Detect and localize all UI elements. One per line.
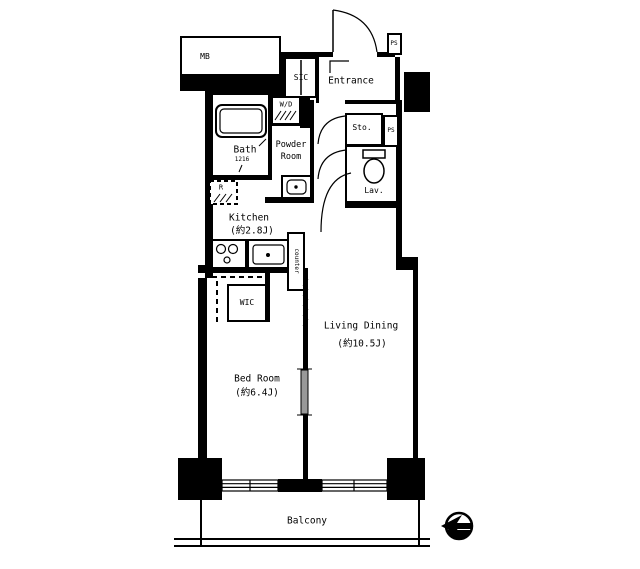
powder-room-label-2: Room: [281, 153, 301, 162]
counter-label: counter: [293, 248, 299, 273]
fridge-space-box: [210, 181, 237, 204]
entrance-step-line: [330, 61, 349, 73]
glass-partition: [297, 369, 312, 415]
living-window: [322, 480, 387, 491]
wd-label: W/D: [280, 102, 293, 109]
mb-box: [181, 37, 280, 75]
fridge-label: R: [219, 185, 223, 192]
wic-label: WIC: [240, 299, 254, 307]
entry-door: [333, 10, 377, 52]
bedroom-label: Bed Room: [234, 374, 280, 384]
bathtub-icon: [216, 105, 266, 137]
washbasin-icon: [282, 176, 311, 198]
ps-mid-label: PS: [387, 128, 394, 134]
sic-label: SIC: [294, 74, 308, 82]
floor-plan-drawing: [0, 0, 640, 569]
storage-door-arc: [318, 116, 345, 144]
north-arrow-icon: [441, 513, 473, 539]
floor-plan: MB SIC Entrance PS W/D Bath 1216 Powder …: [0, 0, 640, 569]
mb-label: MB: [200, 53, 210, 61]
ps-top-label: PS: [390, 41, 397, 47]
storage-label: Sto.: [352, 124, 371, 132]
living-size-label: (約10.5J): [337, 339, 387, 349]
bath-label: Bath: [234, 145, 257, 155]
bedroom-window: [222, 480, 278, 491]
living-dining-label: Living Dining: [324, 321, 398, 331]
lavatory-door-arc: [318, 150, 346, 179]
kitchen-size-label: (約2.8J): [230, 226, 274, 236]
balcony-label: Balcony: [287, 516, 327, 526]
stove-box: [212, 240, 246, 268]
entrance-label: Entrance: [328, 76, 374, 86]
powder-room-label-1: Powder: [276, 141, 307, 150]
lavatory-label: Lav.: [364, 187, 383, 195]
bedroom-size-label: (約6.4J): [235, 388, 279, 398]
kitchen-label: Kitchen: [229, 213, 269, 223]
bath-size-label: 1216: [235, 157, 249, 163]
